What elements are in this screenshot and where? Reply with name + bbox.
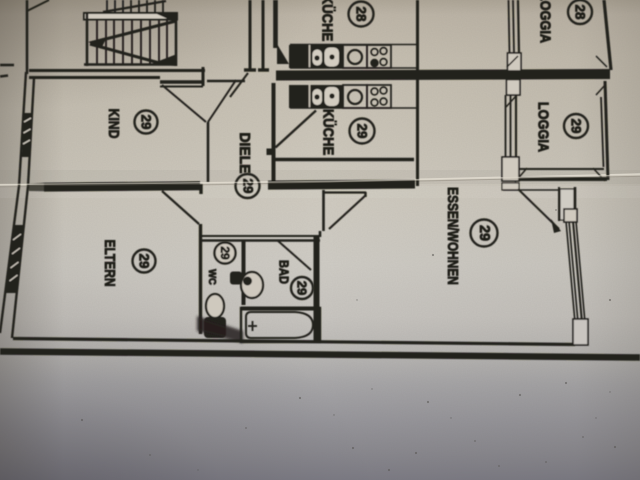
svg-text:WC: WC [206,269,218,285]
svg-text:LOGGIA: LOGGIA [535,102,552,152]
svg-text:29: 29 [355,123,370,138]
svg-text:DIELE: DIELE [236,132,253,173]
svg-text:KIND: KIND [106,108,122,138]
svg-text:ESSEN/WOHNEN: ESSEN/WOHNEN [445,187,461,285]
svg-text:29: 29 [241,178,256,193]
svg-text:29: 29 [476,225,492,241]
svg-text:29: 29 [218,246,232,260]
svg-text:29: 29 [295,281,310,295]
svg-text:28: 28 [354,6,369,22]
svg-text:KÜCHE: KÜCHE [320,109,337,155]
svg-text:KÜCHE: KÜCHE [319,0,336,41]
svg-text:ELTERN: ELTERN [102,239,119,286]
svg-text:BAD: BAD [276,260,291,284]
svg-text:28: 28 [573,4,588,20]
svg-text:29: 29 [137,253,152,268]
svg-text:29: 29 [569,118,584,133]
svg-text:LOGGIA: LOGGIA [537,0,554,43]
svg-text:29: 29 [139,114,154,129]
